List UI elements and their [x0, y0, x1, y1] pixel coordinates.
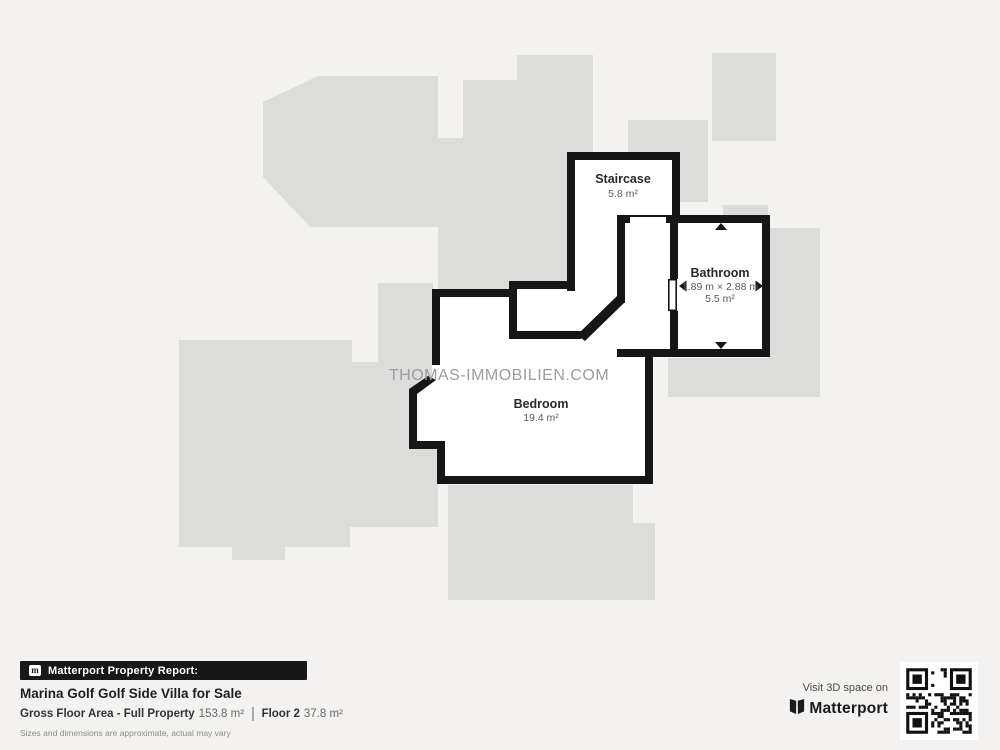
wall-bedroom-bottom	[437, 476, 653, 484]
staircase-label: Staircase	[595, 172, 651, 186]
silhouette-top-left	[263, 55, 593, 289]
silhouette-left	[179, 283, 438, 560]
report-footer: m Matterport Property Report: Marina Gol…	[20, 661, 343, 738]
matterport-badge-icon: m	[29, 665, 41, 676]
floor-plan: Staircase 5.8 m² Bathroom 1.89 m × 2.88 …	[0, 0, 1000, 750]
staircase-area: 5.8 m²	[608, 188, 638, 200]
watermark-text: THOMAS-IMMOBILIEN.COM	[389, 367, 609, 384]
silhouette-bottom	[448, 485, 655, 600]
wall-staircase-right	[672, 152, 680, 223]
visit-3d-block: Visit 3D space on Matterport	[789, 682, 888, 720]
gross-area-value: 153.8 m²	[199, 708, 244, 720]
bedroom-area: 19.4 m²	[523, 412, 559, 424]
report-badge-label: Matterport Property Report:	[48, 665, 198, 677]
matterport-report-badge: m Matterport Property Report:	[20, 661, 307, 680]
gross-area-label: Gross Floor Area - Full Property	[20, 708, 195, 720]
property-title: Marina Golf Golf Side Villa for Sale	[20, 686, 343, 701]
staircase-door-lintel	[630, 215, 666, 217]
disclaimer-text: Sizes and dimensions are approximate, ac…	[20, 728, 343, 738]
staircase-door-gap	[630, 217, 666, 223]
wall-bathroom-bottom	[617, 349, 770, 357]
wall-bedroom-step-h	[409, 441, 445, 449]
bathroom-label: Bathroom	[690, 266, 749, 280]
silhouette-above-bathroom	[723, 205, 768, 215]
area-summary: Gross Floor Area - Full Property 153.8 m…	[20, 707, 343, 721]
bathroom-dimensions: 1.89 m × 2.88 m	[682, 281, 758, 293]
property-report-page: { "colors": { "background": "#f3f2f0", "…	[0, 0, 1000, 750]
wall-staircase-left	[567, 152, 575, 291]
silhouette-top-right	[712, 53, 776, 141]
wall-bedroom-top-left	[432, 289, 517, 297]
wall-bedroom-right	[645, 349, 653, 484]
matterport-brand: Matterport	[789, 698, 888, 720]
bathroom-door-leaf	[669, 280, 676, 311]
matterport-logo-icon	[789, 698, 805, 720]
qr-code	[900, 662, 978, 740]
wall-hall-left	[617, 215, 625, 303]
wall-bathroom-right	[762, 215, 770, 357]
wall-staircase-top	[567, 152, 680, 160]
visit-3d-text: Visit 3D space on	[789, 682, 888, 694]
separator	[252, 707, 254, 721]
floor-area-value: 37.8 m²	[304, 708, 343, 720]
floor-label: Floor 2	[262, 708, 300, 720]
wall-notch-bottom	[509, 331, 581, 339]
bedroom-label: Bedroom	[514, 397, 569, 411]
bathroom-area: 5.5 m²	[705, 293, 735, 305]
wall-bedroom-left-upper	[432, 289, 440, 365]
wall-bedroom-top-right	[509, 281, 575, 289]
wall-bedroom-left-lower	[409, 389, 417, 449]
matterport-wordmark: Matterport	[809, 700, 888, 718]
